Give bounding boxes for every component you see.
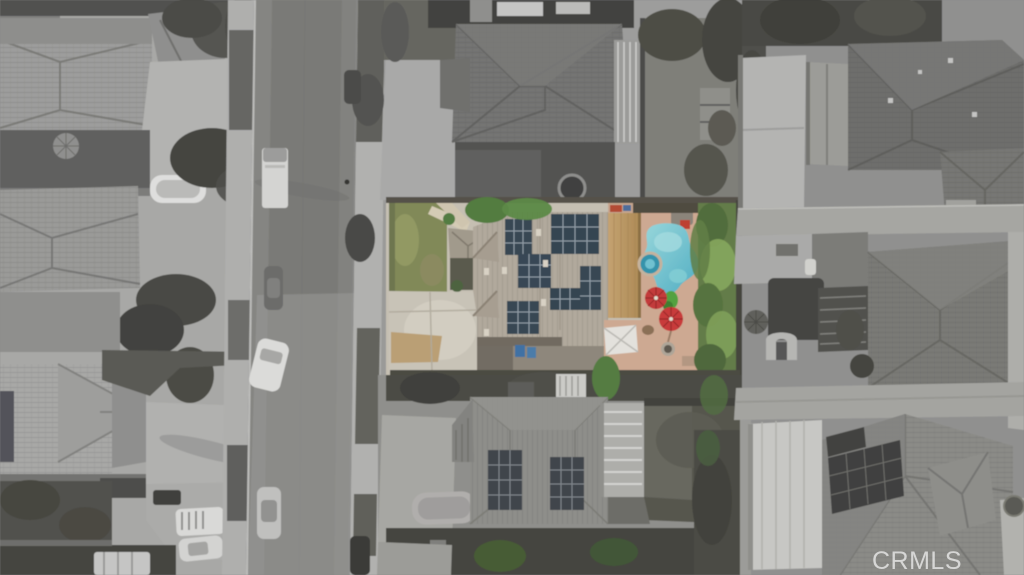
svg-text:CRMLS: CRMLS bbox=[872, 547, 962, 575]
